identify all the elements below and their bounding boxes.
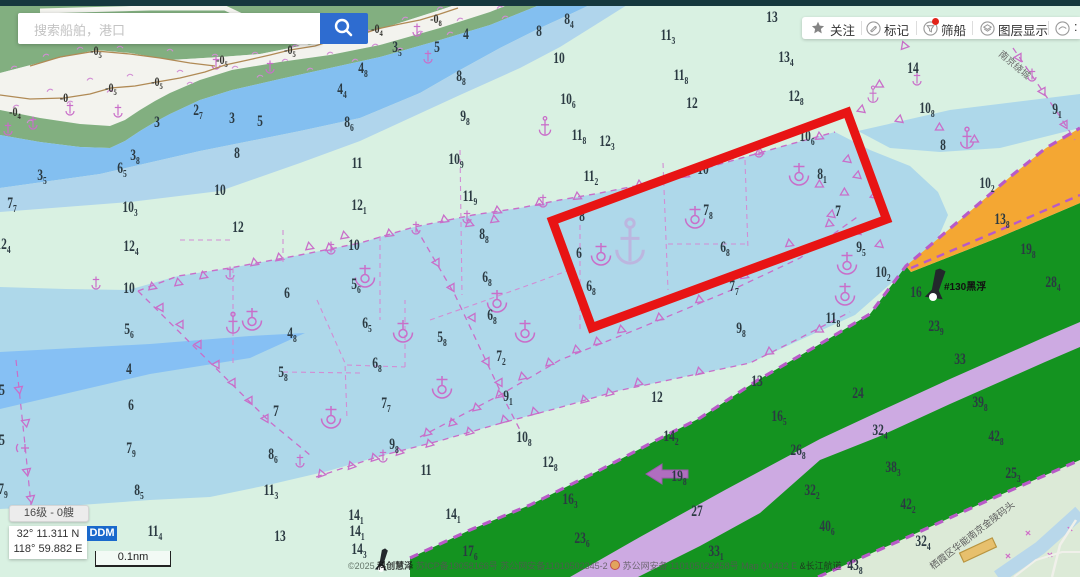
svg-text:4: 4 <box>463 26 469 43</box>
svg-text:6: 6 <box>576 245 582 262</box>
svg-text:3: 3 <box>229 110 235 127</box>
svg-text:5: 5 <box>257 113 263 130</box>
svg-text:8: 8 <box>536 23 542 40</box>
svg-text:12: 12 <box>232 219 244 236</box>
svg-text:5: 5 <box>0 432 5 449</box>
svg-text:7: 7 <box>835 203 841 220</box>
svg-text:6: 6 <box>284 285 290 302</box>
svg-text:10: 10 <box>348 237 360 254</box>
svg-text:11: 11 <box>352 155 363 172</box>
svg-text:33: 33 <box>954 351 966 368</box>
svg-text:8: 8 <box>940 137 946 154</box>
svg-text:11: 11 <box>421 462 432 479</box>
svg-text:#130黑浮: #130黑浮 <box>944 280 986 293</box>
svg-text:13: 13 <box>766 9 778 26</box>
svg-text:3: 3 <box>154 114 160 131</box>
svg-text:4: 4 <box>126 361 132 378</box>
svg-text:5: 5 <box>434 39 440 56</box>
svg-text:16: 16 <box>910 284 922 301</box>
svg-text:10: 10 <box>123 280 135 297</box>
svg-text:14: 14 <box>907 60 919 77</box>
svg-text:7: 7 <box>273 403 279 420</box>
svg-text:10: 10 <box>553 50 565 67</box>
svg-text:24: 24 <box>852 385 864 402</box>
svg-text:13: 13 <box>274 528 286 545</box>
svg-text:-0: -0 <box>60 91 69 105</box>
svg-text:12: 12 <box>651 389 663 406</box>
svg-text:12: 12 <box>686 95 698 112</box>
svg-text:13: 13 <box>751 373 763 390</box>
svg-text:6: 6 <box>128 397 134 414</box>
svg-text:27: 27 <box>691 503 703 520</box>
svg-text:8: 8 <box>234 145 240 162</box>
svg-text:10: 10 <box>214 182 226 199</box>
svg-text:5: 5 <box>0 382 5 399</box>
